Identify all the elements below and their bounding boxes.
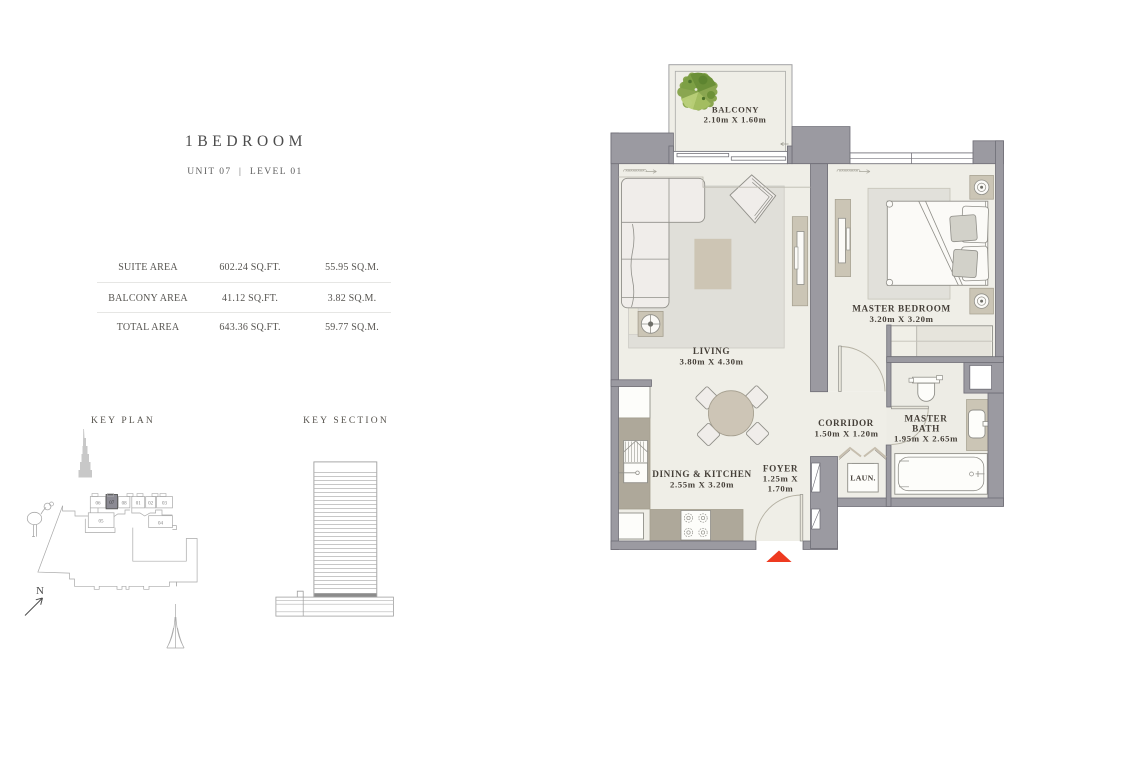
svg-text:DINING & KITCHEN: DINING & KITCHEN [652, 469, 751, 479]
svg-text:03: 03 [162, 502, 168, 507]
svg-text:LIVING: LIVING [693, 346, 730, 356]
svg-text:02: 02 [148, 502, 154, 507]
svg-text:BALCONY: BALCONY [712, 105, 759, 115]
svg-text:01: 01 [136, 502, 142, 507]
svg-text:04: 04 [158, 522, 164, 527]
svg-text:BATH: BATH [912, 424, 940, 434]
svg-text:MASTER BEDROOM: MASTER BEDROOM [852, 304, 951, 314]
svg-text:3.80m X 4.30m: 3.80m X 4.30m [680, 357, 744, 367]
svg-text:3.20m X 3.20m: 3.20m X 3.20m [870, 314, 934, 324]
svg-text:1.70m: 1.70m [768, 484, 794, 494]
svg-text:06: 06 [96, 502, 102, 507]
svg-text:07: 07 [109, 501, 115, 506]
svg-text:1.50m X 1.20m: 1.50m X 1.20m [815, 429, 879, 439]
svg-text:LAUN.: LAUN. [850, 474, 876, 483]
svg-text:05: 05 [99, 520, 105, 525]
svg-text:MASTER: MASTER [905, 414, 948, 424]
svg-text:FOYER: FOYER [763, 464, 798, 474]
svg-text:08: 08 [122, 502, 128, 507]
svg-text:2.55m X 3.20m: 2.55m X 3.20m [670, 480, 734, 490]
svg-text:N: N [36, 585, 44, 597]
svg-text:2.10m X 1.60m: 2.10m X 1.60m [704, 115, 767, 125]
svg-text:1.25m X: 1.25m X [763, 474, 799, 484]
svg-text:1.95m X 2.65m: 1.95m X 2.65m [894, 434, 958, 444]
svg-text:CORRIDOR: CORRIDOR [818, 418, 874, 428]
